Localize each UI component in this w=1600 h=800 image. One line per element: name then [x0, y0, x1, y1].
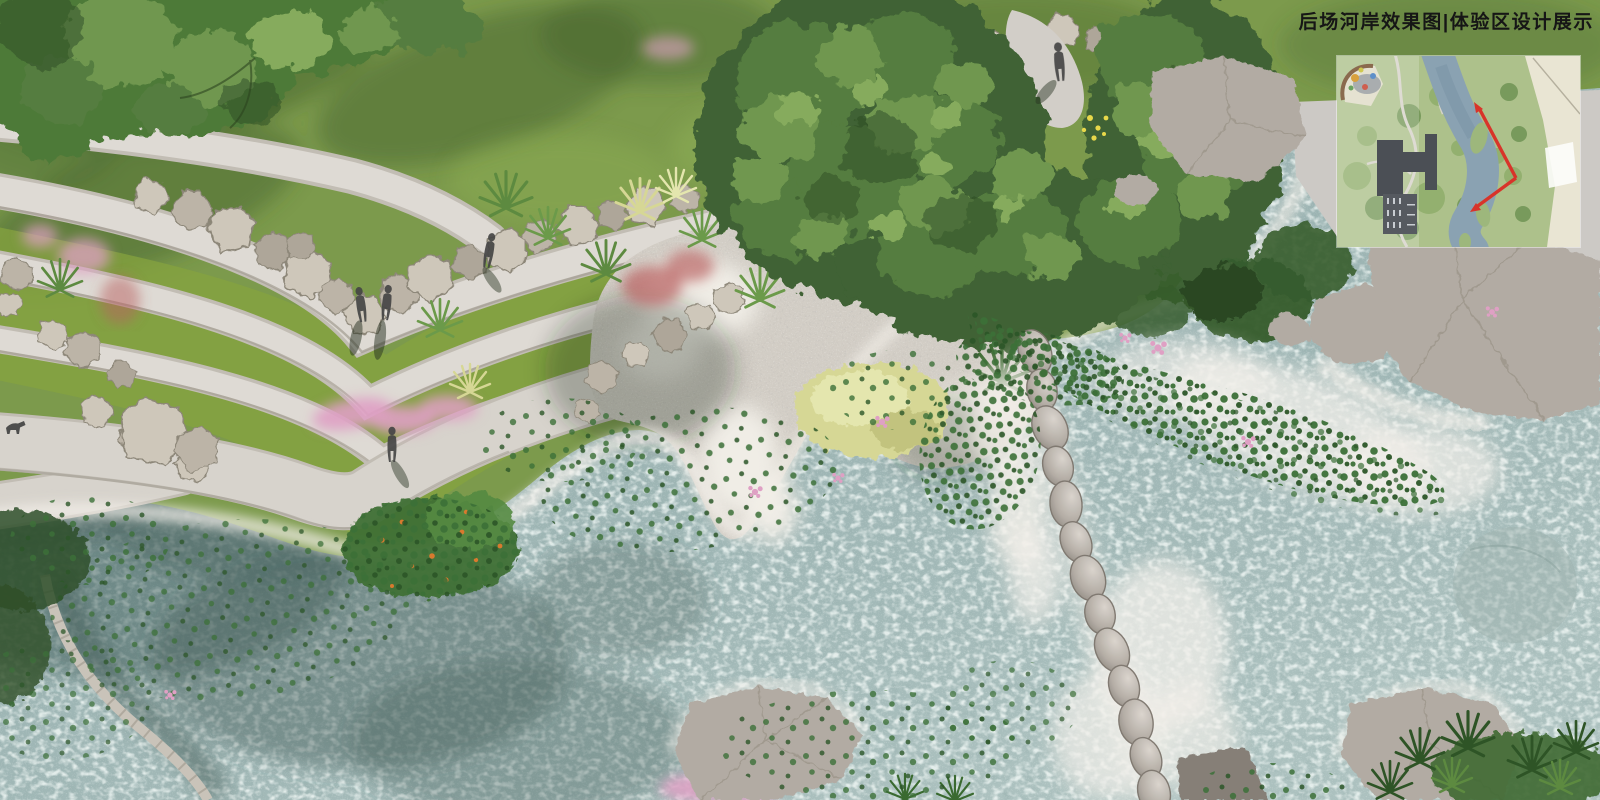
inset-site-plan-canvas: [1337, 56, 1580, 247]
page-title: 后场河岸效果图|体验区设计展示: [1299, 7, 1594, 34]
submerged-rock: [1453, 527, 1577, 643]
inset-site-plan: [1337, 56, 1580, 247]
rendering-page: 后场河岸效果图|体验区设计展示: [0, 0, 1600, 800]
